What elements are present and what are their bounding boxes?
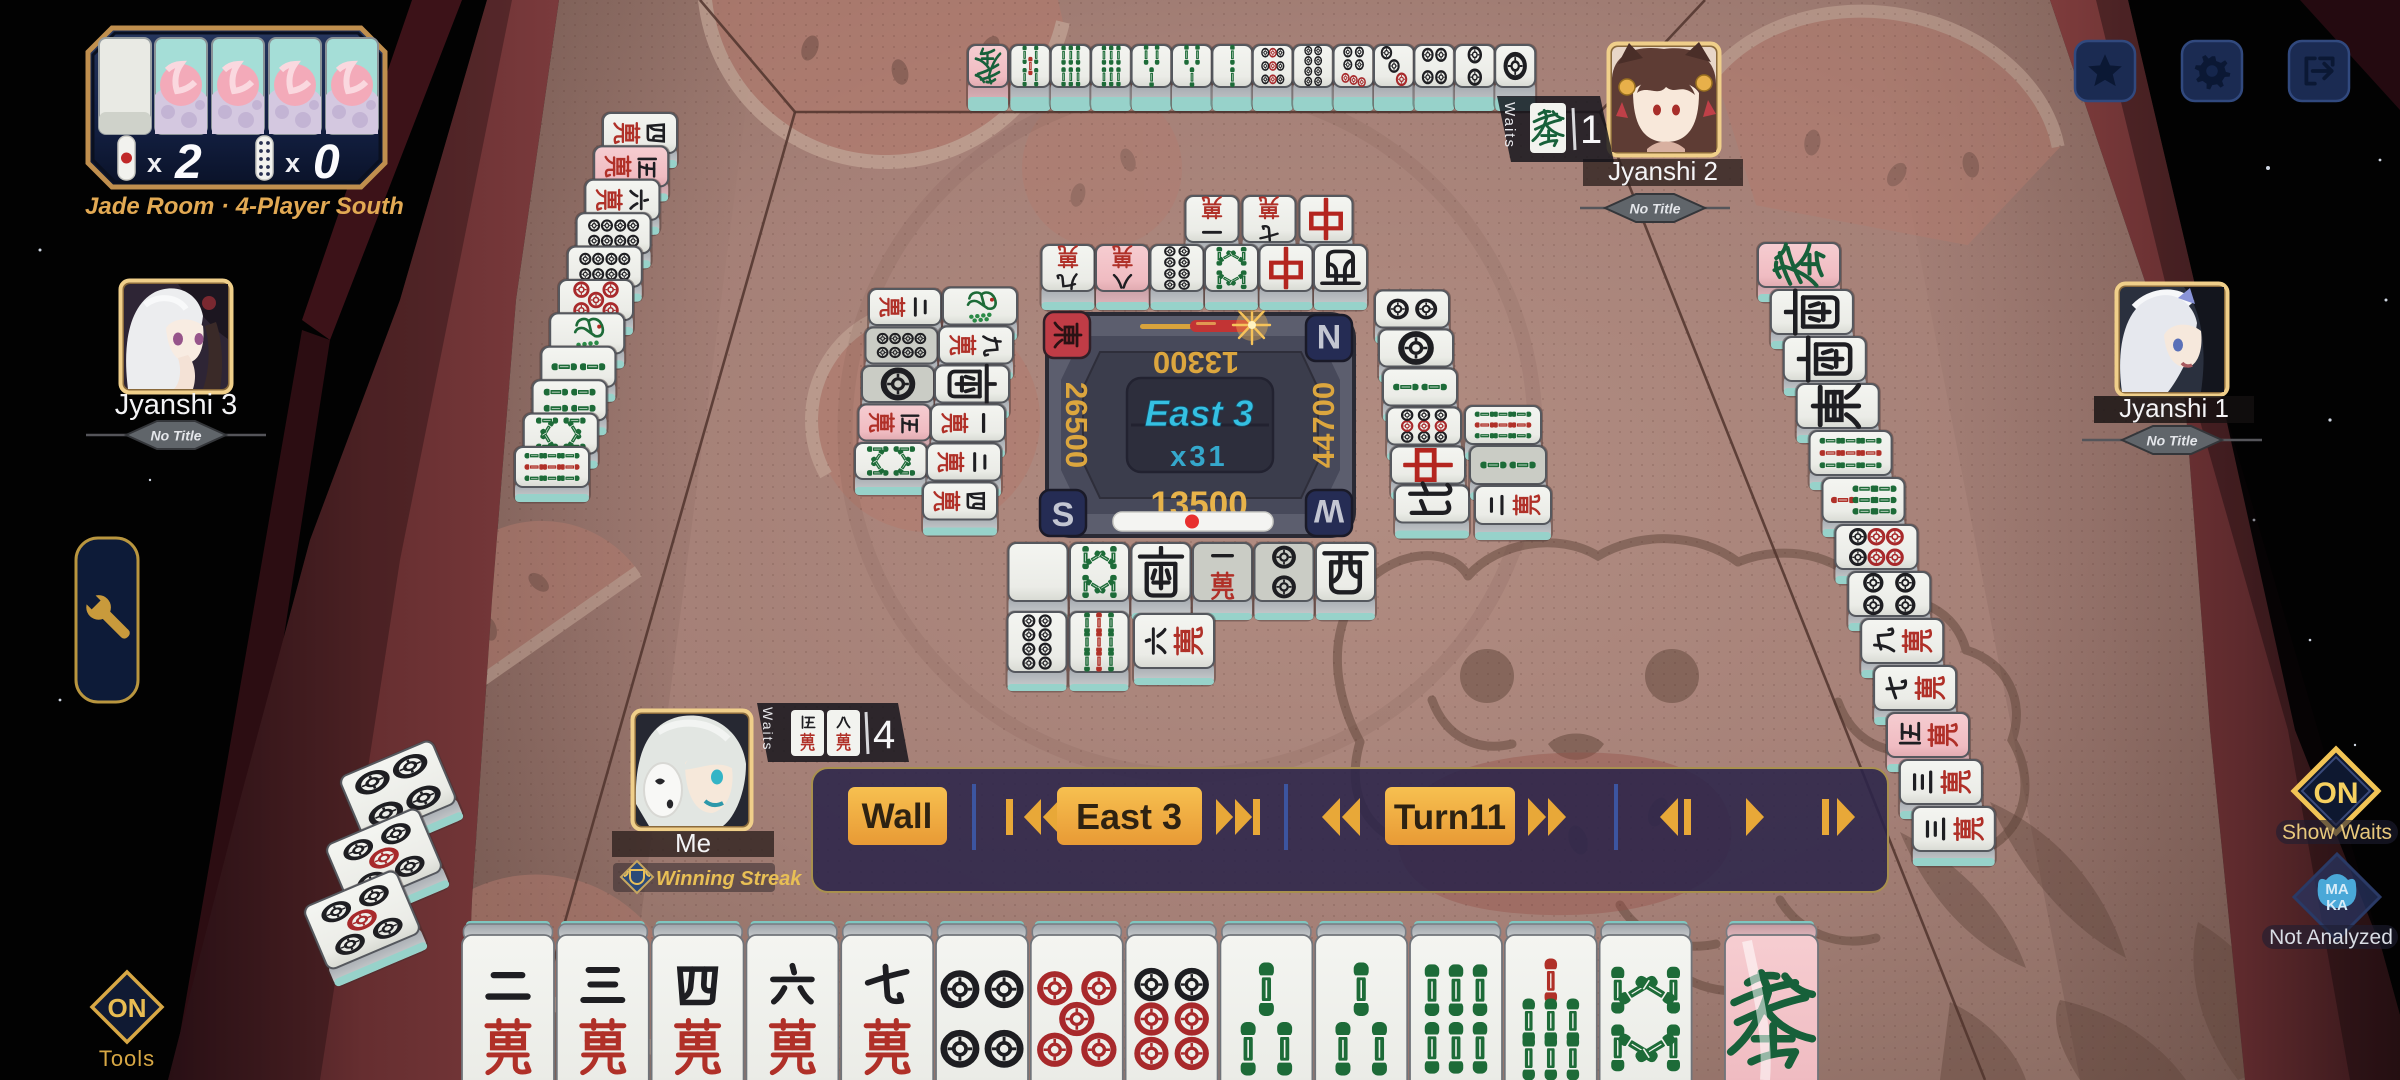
svg-text:East 3: East 3 <box>1144 393 1253 434</box>
svg-text:East 3: East 3 <box>1076 796 1182 837</box>
svg-text:Waits: Waits <box>760 707 776 751</box>
svg-text:1: 1 <box>1580 108 1602 152</box>
svg-text:Wall: Wall <box>862 797 933 836</box>
svg-text:44700: 44700 <box>1306 382 1341 468</box>
svg-text:4: 4 <box>873 713 895 757</box>
svg-text:No Title: No Title <box>150 428 201 444</box>
svg-text:No Title: No Title <box>1629 201 1680 217</box>
svg-text:Jyanshi 1: Jyanshi 1 <box>2119 393 2229 423</box>
svg-text:Jade Room · 4-Player South: Jade Room · 4-Player South <box>85 193 404 220</box>
svg-text:Jyanshi 2: Jyanshi 2 <box>1608 156 1718 186</box>
svg-text:KA: KA <box>2326 897 2348 914</box>
svg-text:Me: Me <box>675 828 711 858</box>
svg-text:Turn11: Turn11 <box>1394 798 1506 837</box>
svg-text:13300: 13300 <box>1153 345 1239 380</box>
svg-text:MA: MA <box>2325 881 2348 898</box>
svg-text:Not Analyzed: Not Analyzed <box>2269 926 2393 949</box>
svg-text:2: 2 <box>174 136 202 189</box>
svg-text:S: S <box>1052 496 1075 534</box>
svg-text:ON: ON <box>108 993 147 1023</box>
svg-text:Tools: Tools <box>99 1046 155 1071</box>
svg-text:No Title: No Title <box>2146 433 2197 449</box>
svg-text:Waits: Waits <box>1501 102 1518 149</box>
svg-text:x: x <box>285 148 300 178</box>
svg-text:26500: 26500 <box>1059 382 1094 468</box>
svg-text:x31: x31 <box>1170 441 1227 473</box>
svg-text:Show Waits: Show Waits <box>2282 821 2392 844</box>
svg-text:Winning Streak: Winning Streak <box>656 868 802 890</box>
svg-text:Jyanshi 3: Jyanshi 3 <box>115 389 238 421</box>
svg-text:N: N <box>1317 317 1342 355</box>
svg-text:0: 0 <box>313 136 340 189</box>
svg-text:ON: ON <box>2314 777 2359 810</box>
svg-text:W: W <box>1313 493 1344 529</box>
svg-text:x: x <box>147 148 162 178</box>
